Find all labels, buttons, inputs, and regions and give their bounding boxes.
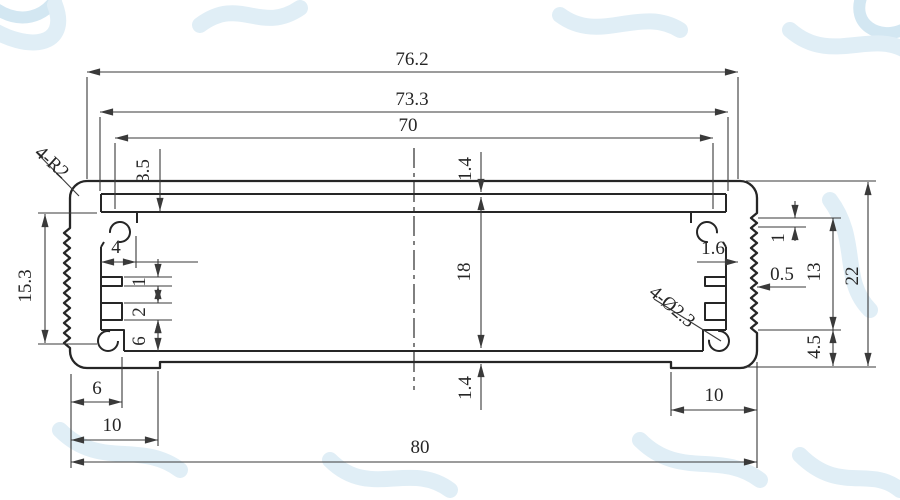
dim-left-knurl-height: 15.3: [15, 213, 97, 344]
profile-outline: [64, 181, 757, 368]
extrusion-profile: [64, 181, 757, 368]
dim-groove-outer-width-text: 73.3: [395, 89, 428, 110]
left-rib: [101, 277, 122, 286]
dim-top-step-depth-text: 3.5: [133, 159, 154, 183]
boss-bottom-left-body: [101, 330, 124, 351]
dim-rib-thickness: 1: [124, 259, 172, 298]
dim-slot-height-text: 2: [129, 307, 150, 317]
label-screw-holes-text: 4-Ø2.3: [645, 282, 699, 332]
dim-right-knurl-height-text: 13: [804, 263, 825, 282]
dim-bottom-wall-thickness-text: 1.4: [455, 376, 476, 400]
dim-top-wall-thickness: 1.4: [455, 152, 481, 192]
dim-cavity-height: 18: [454, 197, 481, 348]
drawing-sheet: 76.2 73.3 70 3.5 1.4 18 1.4: [0, 0, 900, 500]
right-slot: [705, 303, 726, 320]
watermark: [0, 0, 900, 490]
dim-right-wall-thickness-text: 1.6: [701, 238, 725, 259]
dim-slot-to-floor-text: 6: [129, 336, 150, 346]
dim-left-foot-width-text: 6: [92, 378, 102, 399]
dim-slot-height: 2: [124, 292, 172, 332]
dim-right-wall-thickness: 1.6: [697, 238, 738, 262]
dim-groove-opening-width-text: 70: [399, 115, 418, 136]
dim-bottom-wall-thickness: 1.4: [455, 364, 481, 410]
drawing-canvas: 76.2 73.3 70 3.5 1.4 18 1.4: [0, 0, 900, 500]
dim-right-rib-offset-text: 1: [768, 233, 789, 243]
dim-left-step-offset: 10: [71, 371, 158, 446]
label-screw-holes: 4-Ø2.3: [645, 282, 721, 341]
dim-rib-thickness-text: 1: [129, 277, 150, 287]
dim-right-step-offset-text: 10: [705, 385, 724, 406]
dim-left-knurl-height-text: 15.3: [15, 269, 36, 302]
dim-knurl-depth-text: 0.5: [770, 264, 794, 285]
boss-bottom-right-body: [703, 330, 726, 351]
dim-right-step-offset: 10: [671, 372, 757, 416]
dimensions: 76.2 73.3 70 3.5 1.4 18 1.4: [15, 49, 876, 468]
dim-top-face-width: 76.2: [87, 49, 738, 179]
dim-overall-width-text: 80: [411, 437, 430, 458]
dim-right-corner-height: 4.5: [804, 330, 833, 366]
dim-overall-height-text: 22: [842, 267, 863, 286]
screw-hole-bottom-left: [98, 331, 118, 351]
screw-hole-bottom-right: [708, 330, 730, 352]
dim-top-face-width-text: 76.2: [395, 49, 428, 70]
label-corner-radius: 4-R2: [31, 142, 79, 196]
dim-cavity-height-text: 18: [454, 263, 475, 282]
dim-right-rib-offset: 1: [758, 201, 806, 243]
label-corner-radius-text: 4-R2: [31, 142, 73, 183]
dim-knurl-depth: 0.5: [757, 264, 806, 287]
dim-left-step-offset-text: 10: [103, 415, 122, 436]
left-slot: [101, 303, 122, 320]
dim-slot-to-floor: 6: [129, 320, 158, 351]
dim-right-corner-height-text: 4.5: [804, 335, 825, 359]
right-rib: [705, 277, 726, 286]
dim-boss-width: 4: [101, 236, 198, 268]
dim-top-wall-thickness-text: 1.4: [455, 157, 476, 181]
dim-boss-width-text: 4: [111, 237, 121, 258]
